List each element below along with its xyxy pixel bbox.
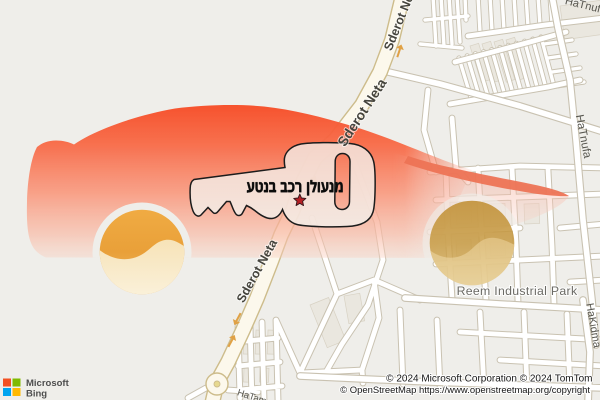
svg-text:© 2024 Microsoft Corporation ©: © 2024 Microsoft Corporation © 2024 TomT… bbox=[386, 374, 592, 385]
svg-text:Microsoft: Microsoft bbox=[26, 378, 70, 389]
svg-text:Bing: Bing bbox=[26, 389, 47, 400]
svg-text:© OpenStreetMap https://www.op: © OpenStreetMap https://www.openstreetma… bbox=[340, 385, 590, 396]
svg-text:Reem Industrial Park: Reem Industrial Park bbox=[457, 284, 578, 298]
